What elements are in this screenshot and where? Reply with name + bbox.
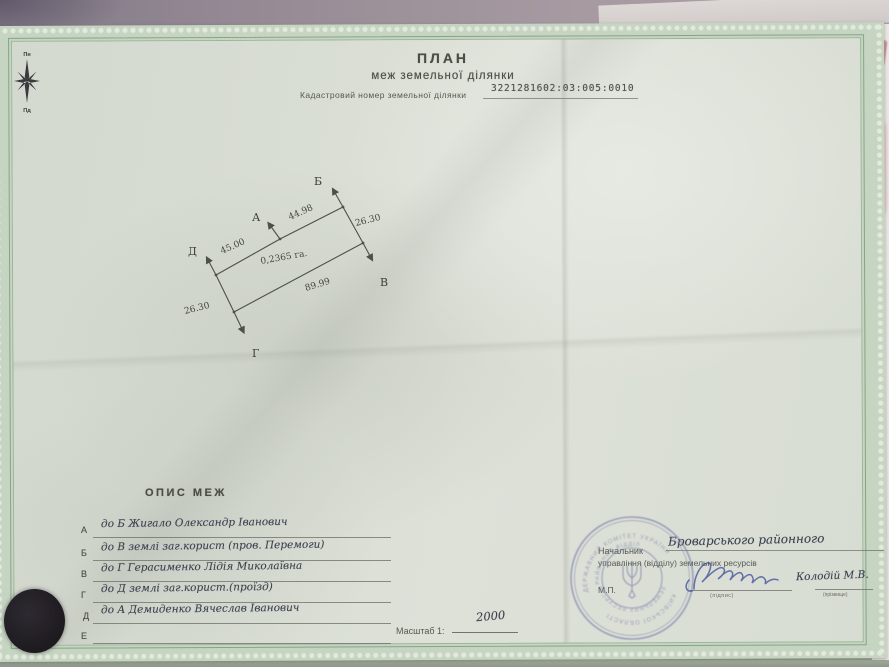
signature-underline	[690, 590, 792, 591]
office-name-underline	[666, 550, 884, 551]
cadastral-number-value: 3221281602:03:005:0010	[491, 83, 634, 94]
plan-paper-field	[12, 38, 863, 645]
certificate-scalloped-edge	[0, 23, 883, 35]
page-title: ПЛАН	[293, 50, 593, 66]
cadastral-underline	[483, 98, 638, 99]
boundary-row-letter: Б	[81, 548, 87, 558]
boundary-row-line	[93, 623, 391, 624]
boundary-row-text: до Д землі заг.корист.(проїзд)	[101, 581, 273, 595]
boundary-row-letter: В	[81, 569, 87, 579]
boundary-row-letter: Г	[81, 590, 86, 600]
boundary-row-text: до А Демиденко Вячеслав Іванович	[101, 602, 300, 616]
scale-label: Масштаб 1:	[396, 626, 445, 636]
certificate-scalloped-edge	[875, 23, 886, 657]
boundary-row-line	[93, 643, 391, 644]
boundary-row-text: до Г Герасименко Лідія Миколаївна	[101, 560, 302, 574]
cadastral-number-label: Кадастровий номер земельної ділянки	[300, 90, 466, 100]
boundary-row-letter: А	[81, 525, 87, 535]
signer-role-line2: управління (відділу) земельних ресурсів	[598, 558, 757, 568]
signer-name-handwritten: Колодій М.В.	[796, 569, 869, 584]
scale-value-handwritten: 2000	[475, 608, 505, 624]
boundaries-heading: ОПИС МЕЖ	[145, 487, 227, 499]
page-subtitle: меж земельної ділянки	[293, 70, 593, 82]
certificate-scalloped-edge	[0, 27, 4, 661]
scanned-land-plan-photo: ПЛАН меж земельної ділянки Кадастровий н…	[0, 0, 889, 667]
signer-name-caption: (прізвище)	[823, 592, 848, 598]
boundary-row-text: до Б Жигало Олександр Іванович	[101, 516, 288, 530]
signer-role-line1: Начальник	[598, 546, 643, 556]
signature-caption: (підпис)	[710, 593, 734, 599]
scale-underline	[452, 632, 518, 633]
seal-place-mark: М.П.	[598, 585, 616, 595]
black-dot-marker	[4, 589, 65, 653]
signer-name-underline	[815, 589, 873, 590]
boundary-row-line	[93, 537, 391, 538]
boundary-row-letter: Д	[83, 611, 89, 621]
boundary-row-letter: Е	[81, 631, 87, 641]
